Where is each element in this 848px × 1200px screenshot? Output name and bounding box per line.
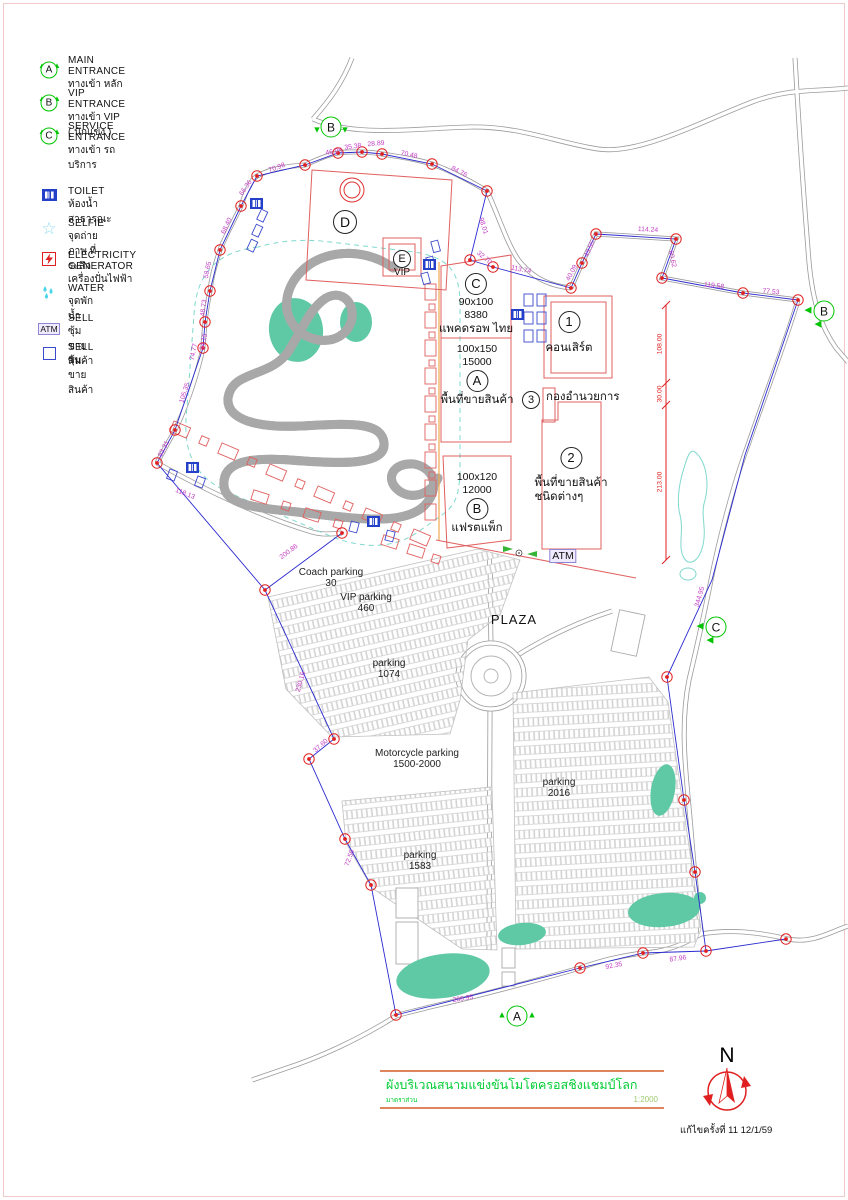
entrance-c-marker-icon: ▲ ▲ C [38,124,60,146]
dimension-label: 28.89 [367,140,385,148]
entrance-arrow-icon: ◀ [805,306,812,315]
building-d [306,170,452,290]
entrance-arrow-icon: ▲ [498,1011,507,1020]
zone-a-size: 100x150 [440,343,513,356]
plaza-label: PLAZA [491,612,537,627]
legend-selfie-en: SELFIE [68,218,104,229]
legend-entrance-c-th: ทางเข้า รถบริการ [68,143,125,173]
zone-e-vip-label: VIP [393,267,411,278]
site-plan-screenshot: { "colors": { "boundary_blue": "#2a2ad0"… [0,0,848,1200]
zone-a-capacity: 15000 [440,356,513,369]
title-rule-bottom [380,1107,664,1109]
atm-map-label[interactable]: ATM [549,549,576,563]
entrance-a-marker-icon: ▲ ▲ A [38,58,60,80]
dimension-label: 108.00 [657,334,664,355]
parking-label: Coach parking30 [299,567,363,589]
zone-c-size: 90x100 [439,296,513,309]
toilet-icon [36,188,62,206]
water-icon [36,285,62,305]
entrance-arrow-icon: ▲ [528,1011,537,1020]
atm-booth-icon: ATM [36,319,62,337]
legend-atm-sell-en: SELL [68,313,94,324]
selfie-icon: ☆ [36,220,62,239]
zone-2-info: 2 พื้นที่ขายสินค้า ชนิดต่างๆ [534,446,607,505]
legend-sell: SELL ซุ้มขายสินค้า [36,342,94,398]
zone-b-info: 100x120 12000 B แฟรตแพ็ก [451,471,502,536]
title-rule-top [380,1070,664,1072]
parking-label: parking2016 [543,777,576,799]
drawing-title: ผังบริเวณสนามแข่งขันโมโตครอสชิงแชมป์โลก [386,1075,664,1095]
zone-b-capacity: 12000 [451,484,502,497]
zone-c-letter: C [465,273,487,295]
zone-c-name: แพคดรอพ ไทย [439,322,513,336]
parking-label: parking1074 [373,658,406,680]
dimension-label: 114.24 [638,226,659,234]
zone-2-name-line1: พื้นที่ขายสินค้า [534,476,607,490]
zone-1-number: 1 [558,311,580,333]
zone-e-label: E VIP [393,249,411,278]
parking-lots [268,549,701,950]
entrance-b-letter: B [41,95,58,112]
legend-electricity: ELECTRICITY GENERATOR เครื่องปั่นไฟฟ้า [36,250,136,287]
entrance-letter: B [814,301,835,322]
compass-north-label: N [719,1044,734,1068]
entrance-a-letter: A [41,62,58,79]
zone-d-label: D [333,209,357,235]
entrance-arrow-icon: ▼ [341,126,350,135]
legend-sell-th: ซุ้มขายสินค้า [68,353,94,398]
entrance-arrow-icon: ◀ [697,622,704,631]
legend-sell-en: SELL [68,342,94,353]
title-block: ผังบริเวณสนามแข่งขันโมโตครอสชิงแชมป์โลก … [380,1070,664,1109]
scale-value: 1:2000 [634,1095,658,1105]
zone-2-name-line2: ชนิดต่างๆ [534,490,607,504]
legend-entrance-b-en: VIP ENTRANCE [68,88,125,110]
parking-label: Motorcycle parking1500-2000 [375,748,459,770]
legend-entrance-a-en: MAIN ENTRANCE [68,55,125,77]
zone-b-size: 100x120 [451,471,502,484]
entrance-letter: C [706,617,727,638]
zone-a-info: 100x150 15000 A พื้นที่ขายสินค้า [440,343,513,408]
zone-b-name: แฟรตแพ็ก [451,521,502,535]
legend-entrance-c: ▲ ▲ C SERVICE ENTRANCE ทางเข้า รถบริการ [36,121,125,173]
zone-3-name: กองอำนวยการ [546,388,620,406]
entrance-c-letter: C [41,128,58,145]
zone-c-capacity: 8380 [439,309,513,322]
electricity-generator-icon [36,252,62,271]
zone-a-letter: A [466,370,488,392]
zone-3-number: 3 [522,390,540,410]
scale-label: มาตราส่วน [386,1095,417,1105]
legend-entrance-c-en: SERVICE ENTRANCE [68,121,125,143]
pond-outline-east [678,451,707,562]
zone-a-name: พื้นที่ขายสินค้า [440,393,513,407]
legend-water-en: WATER [68,283,105,294]
parking-label: parking1583 [404,850,437,872]
parking-label: VIP parking460 [340,592,392,614]
entrance-letter: A [507,1006,528,1027]
zone-b-letter: B [466,498,488,520]
zone-1-info: 1 คอนเสิร์ต [545,310,592,355]
zone-c-info: C 90x100 8380 แพคดรอพ ไทย [439,272,513,337]
dimension-label: 213.00 [657,472,664,493]
zone-1-name: คอนเสิร์ต [545,341,592,355]
legend-entrance-a: ▲ ▲ A MAIN ENTRANCE ทางเข้า หลัก [36,55,125,92]
entrance-letter: B [321,117,342,138]
wayfinding-arrows [503,546,537,557]
legend-electricity-en: ELECTRICITY GENERATOR [68,250,136,272]
site-plan-drawing [0,0,848,1200]
zone-2-number: 2 [560,447,582,469]
compass-rose [703,1068,751,1110]
revision-note: แก้ไขครั้งที่ 11 12/1/59 [680,1123,772,1138]
legend-toilet-en: TOILET [68,186,111,197]
sell-booth-icon [36,347,62,365]
entrance-b-marker-icon: ▲ ▲ B [38,91,60,113]
dimension-label: 30.00 [657,385,664,402]
